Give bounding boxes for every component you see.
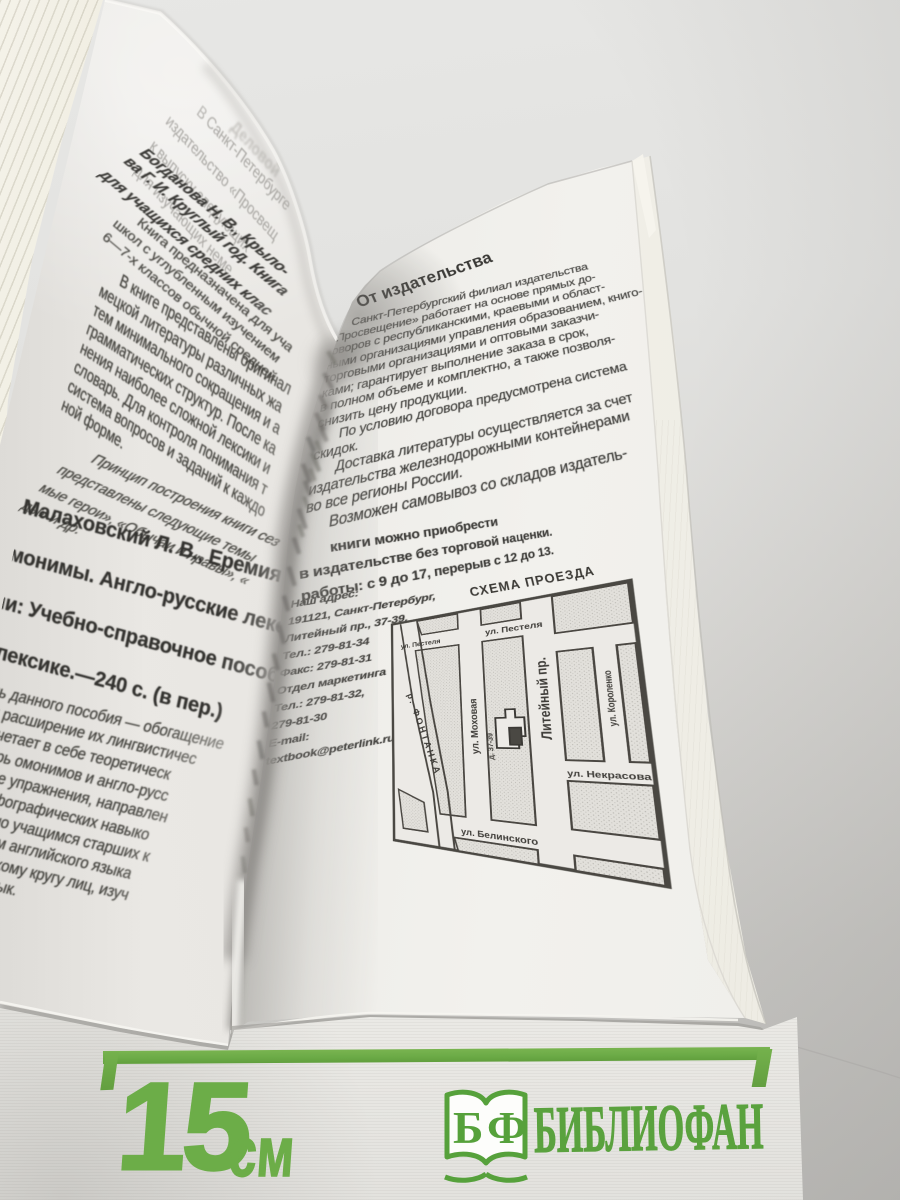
svg-text:Ф: Ф bbox=[487, 1102, 527, 1153]
svg-text:Б: Б bbox=[453, 1102, 483, 1153]
svg-text:д. 37-39: д. 37-39 bbox=[487, 733, 497, 760]
